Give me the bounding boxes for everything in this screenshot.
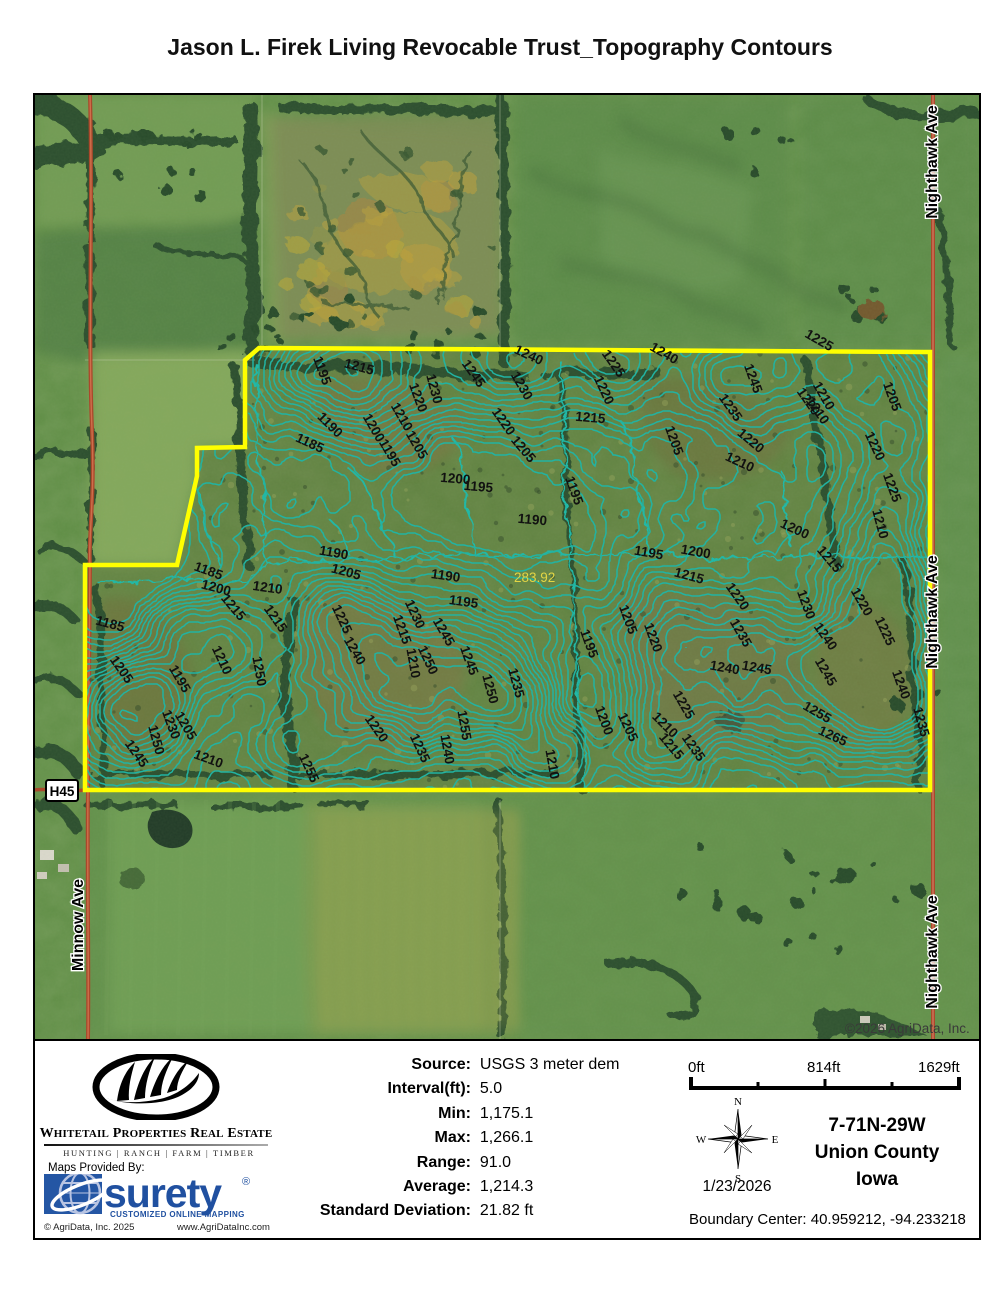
svg-text:W: W xyxy=(696,1134,707,1146)
svg-text:1215: 1215 xyxy=(575,409,607,427)
svg-text:©2026 AgriData, Inc.: ©2026 AgriData, Inc. xyxy=(845,1021,970,1036)
svg-text:H45: H45 xyxy=(50,784,75,799)
svg-text:®: ® xyxy=(242,1176,250,1188)
svg-text:1629ft: 1629ft xyxy=(918,1059,961,1076)
svg-text:N: N xyxy=(734,1096,742,1108)
svg-text:283.92: 283.92 xyxy=(514,570,555,585)
svg-text:CUSTOMIZED ONLINE MAPPING: CUSTOMIZED ONLINE MAPPING xyxy=(110,1210,245,1218)
svg-text:814ft: 814ft xyxy=(807,1059,841,1076)
svg-text:Minnow Ave: Minnow Ave xyxy=(70,879,87,971)
svg-text:1190: 1190 xyxy=(517,511,547,528)
svg-text:Nighthawk Ave: Nighthawk Ave xyxy=(924,555,941,669)
svg-text:Nighthawk Ave: Nighthawk Ave xyxy=(924,105,941,219)
svg-text:1195: 1195 xyxy=(463,478,494,496)
svg-text:0ft: 0ft xyxy=(688,1059,706,1076)
svg-text:Nighthawk Ave: Nighthawk Ave xyxy=(924,895,941,1009)
